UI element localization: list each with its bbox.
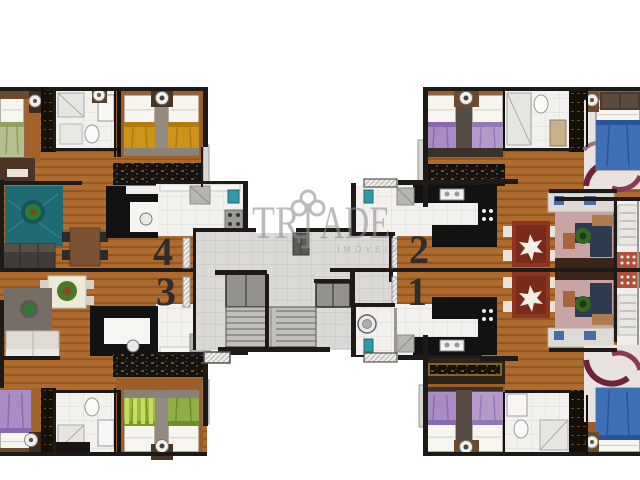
svg-text:IMÓVEIS: IMÓVEIS [337, 244, 400, 254]
svg-text:ADE: ADE [320, 197, 390, 249]
svg-text:3: 3 [156, 269, 176, 314]
svg-text:4: 4 [153, 229, 173, 274]
svg-text:2: 2 [409, 227, 429, 272]
svg-text:1: 1 [407, 269, 427, 314]
